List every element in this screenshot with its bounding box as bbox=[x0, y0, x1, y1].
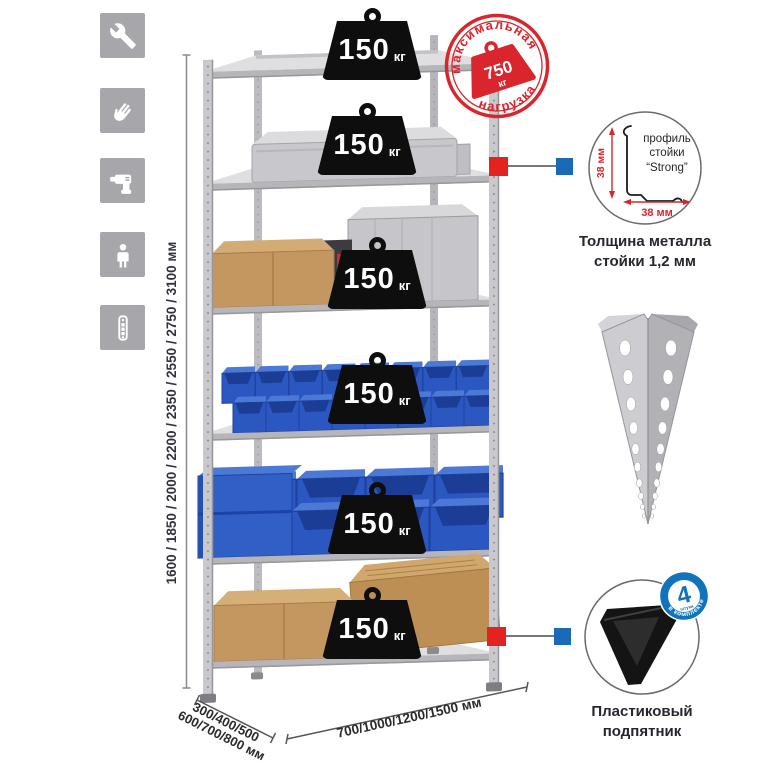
sidebar-tile-gloves bbox=[100, 88, 145, 133]
width-dimension-label: 700/1000/1200/1500 мм bbox=[335, 695, 482, 741]
foot-caption: Пластиковый подпятник bbox=[552, 702, 732, 742]
weight-value: 150 bbox=[343, 508, 394, 541]
perforated-profile-icon bbox=[109, 314, 137, 342]
gloves-icon bbox=[109, 97, 137, 125]
shelf-load-weight: 150кг bbox=[327, 482, 427, 554]
cardboard-box bbox=[212, 238, 334, 308]
drill-icon bbox=[109, 167, 137, 195]
weight-value: 150 bbox=[338, 613, 389, 646]
red-marker bbox=[487, 627, 506, 646]
shelf-load-weight: 150кг bbox=[327, 237, 427, 309]
weight-unit: кг bbox=[399, 393, 411, 408]
profile-dim-vertical: 38 мм bbox=[595, 148, 607, 178]
shelf-load-weight: 150кг bbox=[322, 587, 422, 659]
product-infographic: 1600 / 1850 / 2000 / 2200 / 2350 / 2550 … bbox=[0, 0, 765, 765]
angle-post-image bbox=[598, 314, 698, 524]
sidebar-tile-profile bbox=[100, 305, 145, 350]
depth-dimension: 300/400/500 600/700/800 мм bbox=[176, 695, 276, 763]
profile-label-3: “Strong” bbox=[646, 162, 688, 174]
weight-unit: кг bbox=[399, 523, 411, 538]
profile-dim-horizontal: 38 мм bbox=[641, 207, 673, 219]
weight-unit: кг bbox=[389, 144, 401, 159]
weight-unit: кг bbox=[399, 278, 411, 293]
foot-detail-circle: 4 штуки в комплекте bbox=[585, 566, 714, 694]
blue-marker bbox=[556, 158, 573, 175]
weight-unit: кг bbox=[394, 628, 406, 643]
profile-label-2: стойки bbox=[649, 147, 684, 159]
shelf-load-weight: 150кг bbox=[317, 103, 417, 175]
profile-callout bbox=[489, 157, 573, 176]
height-dimension-label: 1600 / 1850 / 2000 / 2200 / 2350 / 2550 … bbox=[164, 242, 179, 585]
sidebar-tile-drill bbox=[100, 158, 145, 203]
person-icon bbox=[110, 242, 136, 268]
weight-value: 150 bbox=[343, 263, 394, 296]
red-marker bbox=[489, 157, 508, 176]
profile-detail-circle: 38 мм 38 мм профиль стойки “Strong” bbox=[589, 112, 701, 224]
max-load-stamp: максимальная нагрузка 750 кг bbox=[433, 2, 560, 129]
height-dimension: 1600 / 1850 / 2000 / 2200 / 2350 / 2550 … bbox=[164, 55, 191, 688]
shelf-load-weight: 150кг bbox=[322, 8, 422, 80]
blue-marker bbox=[554, 628, 571, 645]
profile-caption-line1: Толщина металла bbox=[555, 232, 735, 252]
shelf-load-weight: 150кг bbox=[327, 352, 427, 424]
foot-caption-line2: подпятник bbox=[552, 722, 732, 742]
wrench-icon bbox=[109, 22, 137, 50]
weight-value: 150 bbox=[333, 129, 384, 162]
foot-caption-line1: Пластиковый bbox=[552, 702, 732, 722]
weight-value: 150 bbox=[343, 378, 394, 411]
profile-caption-line2: стойки 1,2 мм bbox=[555, 252, 735, 272]
profile-caption: Толщина металла стойки 1,2 мм bbox=[555, 232, 735, 272]
weight-value: 150 bbox=[338, 34, 389, 67]
sidebar-tile-assembly bbox=[100, 13, 145, 58]
sidebar-tile-person bbox=[100, 232, 145, 277]
foot-callout bbox=[487, 627, 571, 646]
profile-label-1: профиль bbox=[643, 133, 691, 145]
weight-unit: кг bbox=[394, 49, 406, 64]
